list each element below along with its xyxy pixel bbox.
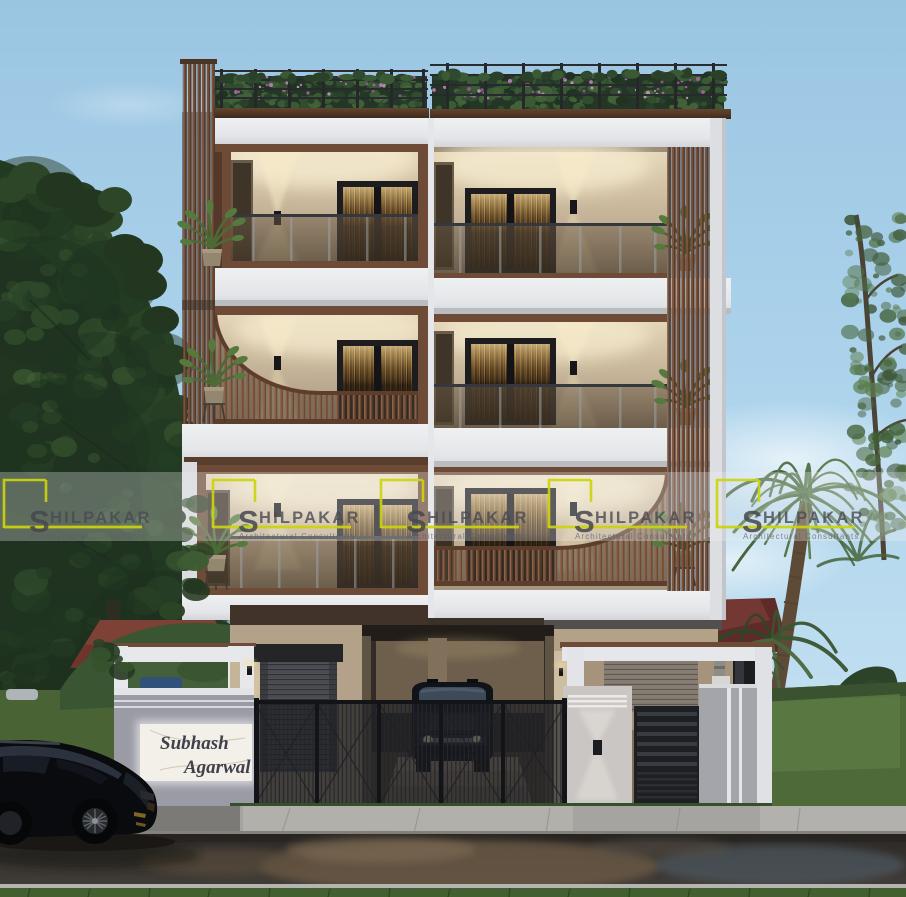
svg-text:Architectural Consultants: Architectural Consultants [30, 532, 146, 541]
svg-text:HILPAKAR: HILPAKAR [50, 509, 152, 527]
svg-text:Subhash: Subhash [160, 733, 229, 754]
svg-text:Agarwal: Agarwal [183, 757, 251, 778]
